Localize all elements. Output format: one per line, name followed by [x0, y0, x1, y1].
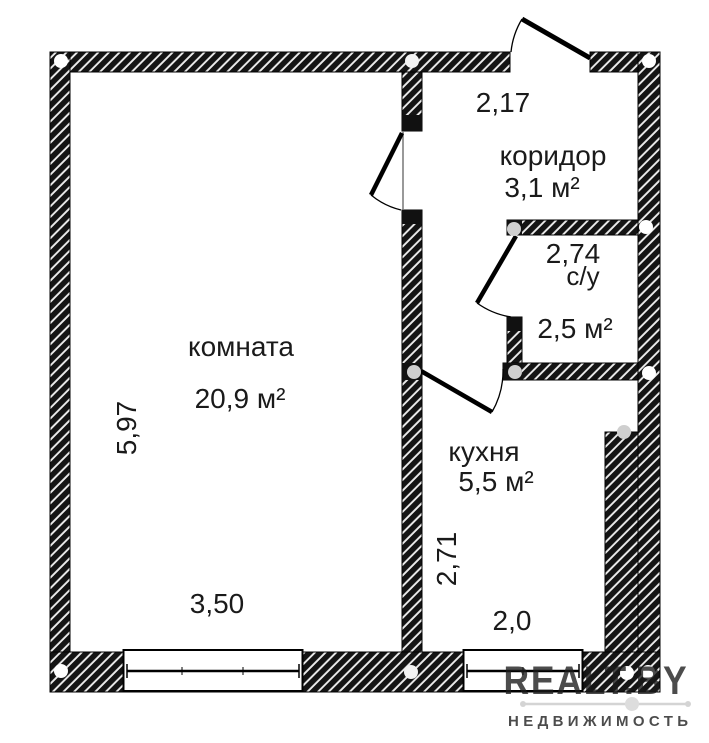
watermark-brand: REALT.BY	[504, 659, 689, 703]
bathroom-area-label: 2,5 м²	[537, 313, 612, 344]
kitchen-height-dim: 2,71	[431, 532, 462, 587]
corridor-width-dim: 2,17	[476, 87, 531, 118]
room-door-arc	[371, 195, 401, 210]
corner-dot	[405, 54, 419, 68]
kitchen-door-arc	[492, 369, 503, 412]
bathroom-door-leaf	[477, 236, 516, 303]
corner-dot	[507, 222, 521, 236]
watermark: REALT.BY НЕДВИЖИМОСТЬ	[504, 659, 692, 730]
corner-dot	[54, 54, 68, 68]
cap-room-door-top	[402, 115, 422, 131]
entrance-door-arc	[511, 19, 522, 52]
corridor-area-label: 3,1 м²	[504, 172, 579, 203]
cap-bathroom-stub	[507, 317, 522, 331]
corner-dot	[642, 54, 656, 68]
wall-bathroom-bottom	[503, 363, 638, 380]
wall-room-kitchen-main	[402, 210, 422, 652]
room-area-label: 20,9 м²	[195, 383, 286, 414]
kitchen-name-label: кухня	[448, 436, 519, 467]
watermark-circle	[625, 697, 639, 711]
watermark-line-end-right	[685, 701, 691, 707]
corner-dot	[508, 365, 522, 379]
room-height-dim: 5,97	[111, 401, 142, 456]
floorplan-svg: комната 20,9 м² 5,97 3,50 2,17 коридор 3…	[0, 0, 709, 743]
wall-bathroom-top	[507, 220, 638, 235]
corner-dot	[639, 220, 653, 234]
room-door	[371, 131, 403, 210]
room-door-leaf	[371, 133, 402, 195]
watermark-tagline: НЕДВИЖИМОСТЬ	[508, 713, 688, 730]
kitchen-door	[421, 369, 503, 412]
cap-room-door-bottom	[402, 210, 422, 224]
labels: комната 20,9 м² 5,97 3,50 2,17 коридор 3…	[111, 87, 613, 636]
corner-dot	[54, 664, 68, 678]
bathroom-name-label: с/у	[566, 261, 599, 291]
bathroom-door	[477, 236, 516, 317]
entrance-door-leaf	[522, 19, 590, 58]
kitchen-area-label: 5,5 м²	[458, 466, 533, 497]
corner-dot	[404, 665, 418, 679]
kitchen-door-leaf	[421, 371, 492, 412]
corner-dot	[617, 425, 631, 439]
entrance-door	[511, 19, 590, 58]
room-window	[124, 650, 303, 691]
vent-shaft	[605, 432, 638, 652]
corner-dot	[407, 365, 421, 379]
wall-left	[50, 52, 70, 692]
floorplan-canvas: комната 20,9 м² 5,97 3,50 2,17 коридор 3…	[0, 0, 709, 743]
room-width-dim: 3,50	[190, 588, 245, 619]
kitchen-width-dim: 2,0	[493, 605, 532, 636]
corridor-name-label: коридор	[500, 140, 607, 171]
room-name-label: комната	[188, 331, 294, 362]
wall-top-left-segment	[50, 52, 510, 72]
corner-dot	[642, 366, 656, 380]
bathroom-door-arc	[477, 303, 511, 317]
watermark-line-end-left	[520, 701, 526, 707]
